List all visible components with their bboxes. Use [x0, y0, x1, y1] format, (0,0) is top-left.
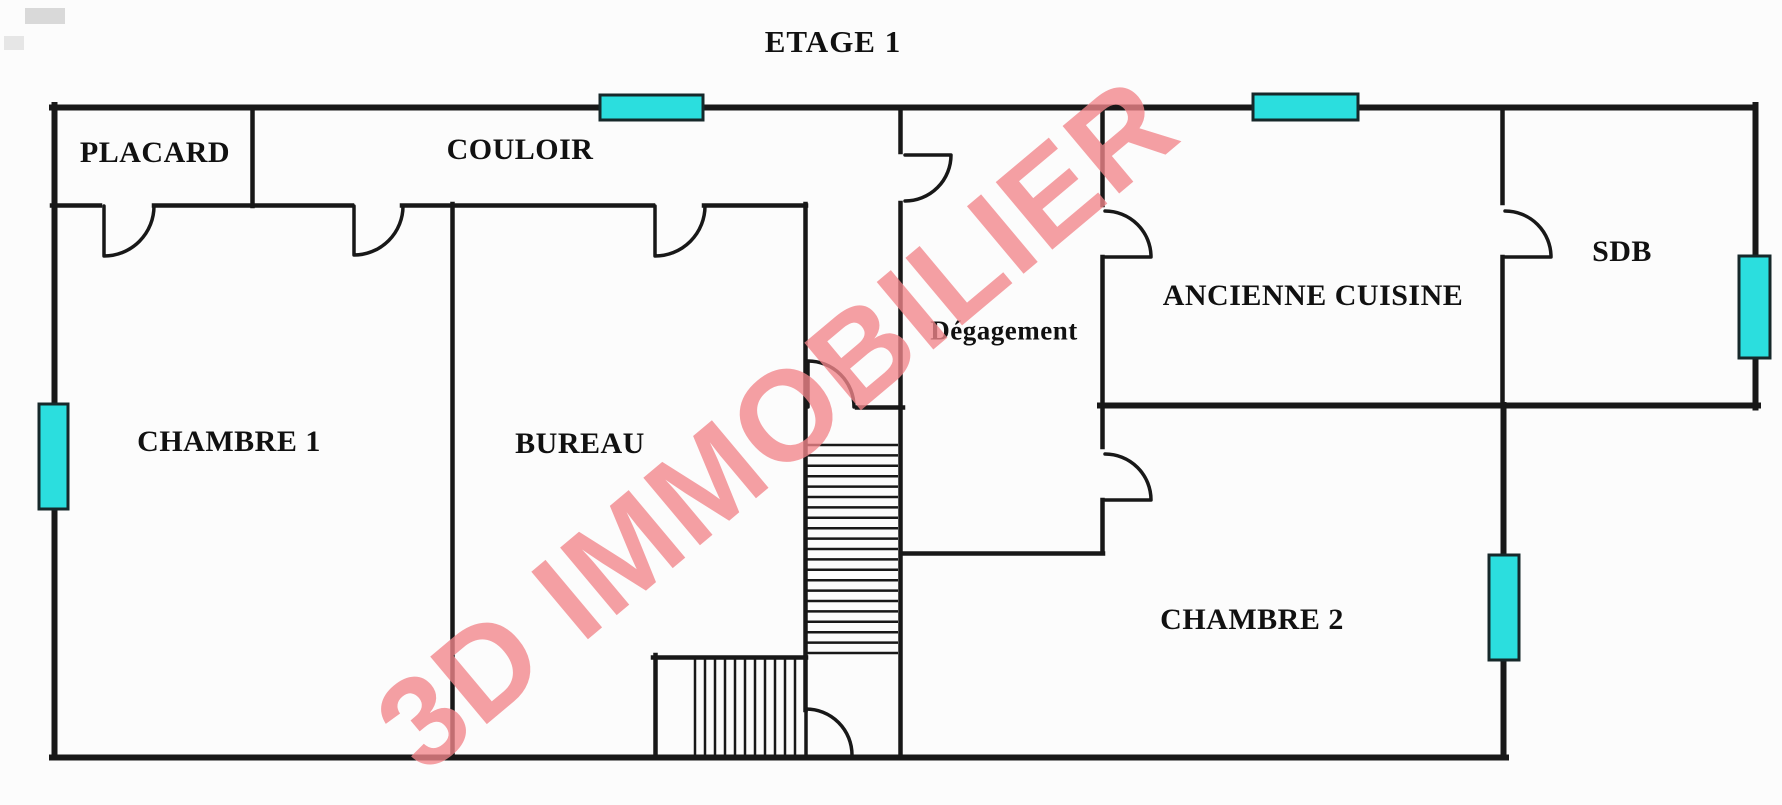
door-arc-bureau [655, 206, 705, 256]
room-label-sdb: SDB [1592, 235, 1652, 269]
door-arc-placard [104, 206, 154, 256]
room-label-chambre2: CHAMBRE 2 [1160, 603, 1344, 637]
door-arc-sdb [1505, 211, 1551, 257]
door-arc-cuisine [1105, 211, 1151, 257]
staircase-upper-flight [806, 445, 898, 653]
room-label-degagement: Dégagement [930, 316, 1077, 347]
room-label-couloir: COULOIR [447, 133, 594, 167]
floor-plan: ETAGE 1 PLACARD COULOIR CHAMBRE 1 BUREAU… [0, 0, 1782, 794]
window-marker-chambre2-right [1489, 555, 1519, 660]
window-marker-chambre1-left [39, 404, 68, 509]
window-marker-cuisine-top [1253, 94, 1358, 120]
room-label-placard: PLACARD [80, 136, 230, 170]
page-title: ETAGE 1 [765, 24, 901, 60]
room-label-chambre1: CHAMBRE 1 [137, 425, 321, 459]
window-marker-sdb-right [1739, 256, 1770, 358]
door-arc-chambre1 [354, 206, 403, 255]
window-marker-couloir-top [600, 95, 703, 120]
door-arc-stairs-top [808, 361, 854, 407]
windows [39, 94, 1770, 660]
staircase-lower-flight [695, 658, 795, 755]
room-label-bureau: BUREAU [515, 427, 645, 461]
door-arc-stairs-bottom [806, 709, 852, 755]
door-arc-degagement [905, 155, 951, 201]
door-arc-chambre2 [1105, 454, 1151, 500]
room-label-ancienne-cuisine: ANCIENNE CUISINE [1163, 279, 1464, 313]
floor-plan-canvas [0, 0, 1782, 794]
